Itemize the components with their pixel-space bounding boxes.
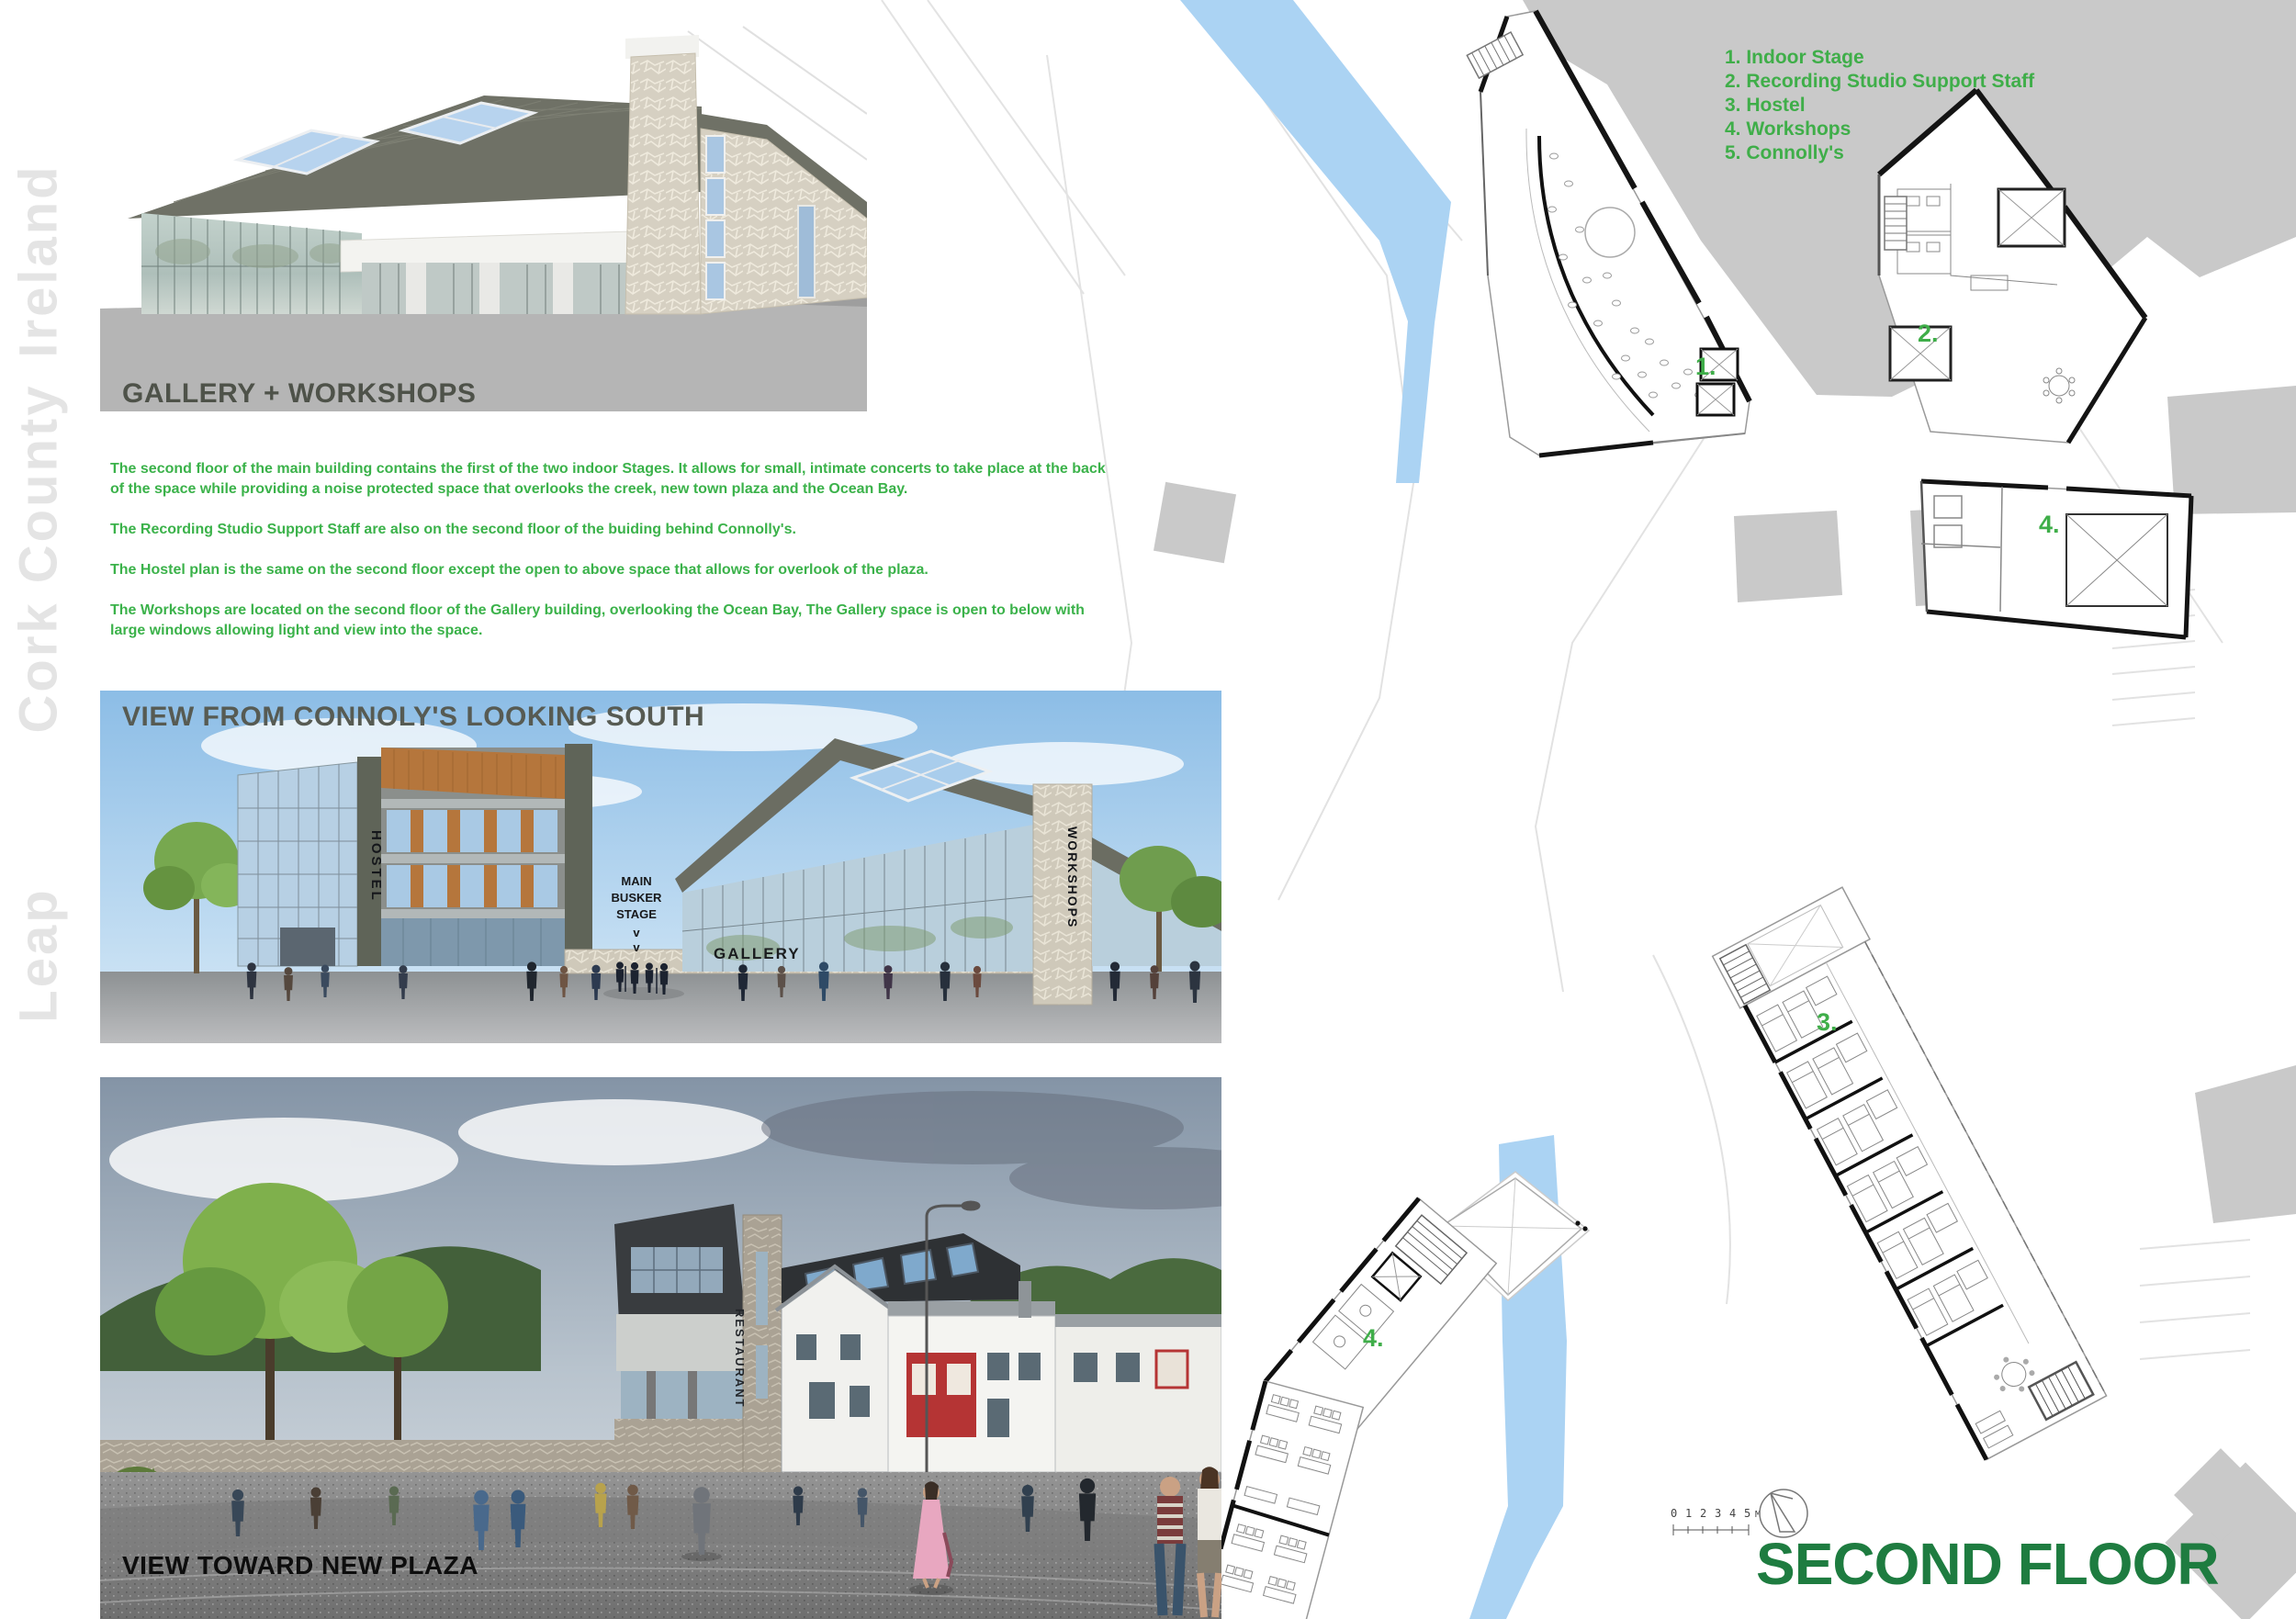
gallery-workshops-illustration [100, 22, 867, 411]
context-building-square [1154, 482, 1236, 563]
description-paragraph-2: The Recording Studio Support Staff are a… [110, 520, 1107, 540]
plaza-view-rendering: RESTAURANT [100, 1077, 1221, 1619]
legend-item-hostel: 3. Hostel [1725, 94, 2034, 118]
svg-text:1: 1 [1685, 1507, 1692, 1520]
svg-text:5: 5 [1744, 1507, 1750, 1520]
connolys-view-rendering: HOSTEL GALLERY WORKSHOPS [100, 691, 1221, 1043]
connolys-view-title: VIEW FROM CONNOLY'S LOOKING SOUTH [122, 702, 704, 733]
legend-item-recording-studio: 2. Recording Studio Support Staff [1725, 70, 2034, 94]
svg-text:3: 3 [1715, 1507, 1721, 1520]
svg-text:2: 2 [1700, 1507, 1706, 1520]
floor-title: SECOND FLOOR [1756, 1530, 2219, 1598]
connolys-view-illustration: HOSTEL GALLERY WORKSHOPS [100, 691, 1221, 1043]
gallery-workshops-rendering: GALLERY + WORKSHOPS [100, 22, 867, 411]
restaurant-sign-label: RESTAURANT [733, 1309, 747, 1409]
plaza-view-illustration: RESTAURANT [100, 1077, 1221, 1619]
plan-label-4-bottom: 4. [1363, 1324, 1384, 1352]
presentation-board: 1. [0, 0, 2296, 1619]
description-paragraph-1: The second floor of the main building co… [110, 459, 1107, 500]
cottage-gable [776, 1266, 894, 1472]
plan-label-1: 1. [1695, 353, 1716, 380]
project-description: The second floor of the main building co… [110, 459, 1107, 661]
site-plan-drawing: 1. [1139, 0, 2296, 1619]
svg-text:0: 0 [1671, 1507, 1677, 1520]
scale-bar: 0 1 2 3 4 5 M [1671, 1507, 1761, 1535]
plan-label-2: 2. [1918, 320, 1939, 347]
location-word-cork-county: Cork County [8, 384, 70, 734]
description-paragraph-4: The Workshops are located on the second … [110, 601, 1107, 641]
plaza-view-title: VIEW TOWARD NEW PLAZA [122, 1551, 478, 1580]
svg-text:BUSKER: BUSKER [612, 891, 663, 905]
workshops-sign-label: WORKSHOPS [1065, 826, 1080, 928]
description-paragraph-3: The Hostel plan is the same on the secon… [110, 560, 1107, 580]
location-word-leap: Leap [8, 887, 70, 1022]
svg-text:4: 4 [1729, 1507, 1736, 1520]
plan-label-3: 3. [1817, 1008, 1838, 1036]
legend-item-connollys: 5. Connolly's [1725, 141, 2034, 165]
svg-text:v: v [633, 940, 640, 954]
plan-label-4-top: 4. [2039, 511, 2060, 538]
gallery-workshops-label: GALLERY + WORKSHOPS [122, 378, 476, 410]
plan-workshops-top: 4. [1921, 481, 2191, 637]
location-word-ireland: Ireland [8, 163, 70, 357]
cottage-row [888, 1281, 1055, 1472]
cottage-right [1055, 1314, 1221, 1472]
hostel-building: HOSTEL [238, 744, 592, 970]
legend-item-workshops: 4. Workshops [1725, 118, 2034, 141]
plan-legend: 1. Indoor Stage 2. Recording Studio Supp… [1725, 46, 2034, 165]
restaurant-building: RESTAURANT [614, 1204, 782, 1477]
svg-text:STAGE: STAGE [616, 907, 657, 921]
hostel-sign-label: HOSTEL [368, 830, 384, 903]
legend-item-indoor-stage: 1. Indoor Stage [1725, 46, 2034, 70]
svg-text:MAIN: MAIN [621, 874, 651, 888]
gallery-sign-label: GALLERY [714, 945, 801, 962]
svg-text:v: v [633, 926, 640, 939]
plan-workshops-bottom: 4. [1201, 1198, 1496, 1619]
plan-hostel: 3. [1713, 887, 2111, 1462]
